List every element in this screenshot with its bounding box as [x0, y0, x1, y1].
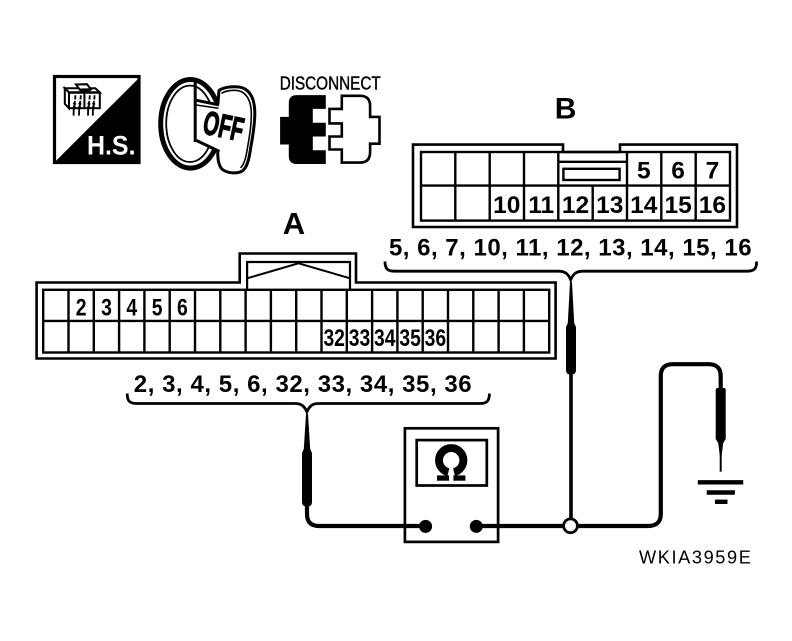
svg-text:5: 5 — [152, 295, 163, 322]
svg-text:DISCONNECT: DISCONNECT — [280, 73, 381, 93]
svg-text:2: 2 — [76, 295, 87, 322]
svg-text:16: 16 — [699, 192, 726, 219]
svg-text:A: A — [283, 206, 305, 241]
svg-text:4: 4 — [126, 295, 137, 322]
svg-text:6: 6 — [177, 295, 188, 322]
svg-text:5: 5 — [637, 157, 651, 184]
svg-text:B: B — [555, 93, 577, 126]
svg-text:6: 6 — [671, 157, 685, 184]
svg-text:10: 10 — [493, 192, 520, 219]
svg-text:32: 32 — [323, 325, 345, 352]
svg-text:H.S.: H.S. — [87, 131, 136, 161]
svg-text:7: 7 — [706, 157, 720, 184]
svg-text:35: 35 — [399, 325, 421, 352]
svg-text:2, 3, 4, 5, 6, 32, 33, 34, 35,: 2, 3, 4, 5, 6, 32, 33, 34, 35, 36 — [134, 371, 472, 398]
svg-text:15: 15 — [664, 192, 691, 219]
svg-text:34: 34 — [374, 325, 396, 352]
svg-text:11: 11 — [528, 192, 554, 219]
svg-text:14: 14 — [630, 192, 658, 219]
svg-text:36: 36 — [425, 325, 447, 352]
svg-text:3: 3 — [101, 295, 112, 322]
svg-text:13: 13 — [596, 192, 623, 219]
svg-text:WKIA3959E: WKIA3959E — [639, 548, 752, 568]
svg-text:12: 12 — [562, 192, 589, 219]
svg-text:5, 6, 7, 10, 11, 12, 13, 14, 1: 5, 6, 7, 10, 11, 12, 13, 14, 15, 16 — [389, 235, 752, 262]
svg-text:33: 33 — [349, 325, 371, 352]
